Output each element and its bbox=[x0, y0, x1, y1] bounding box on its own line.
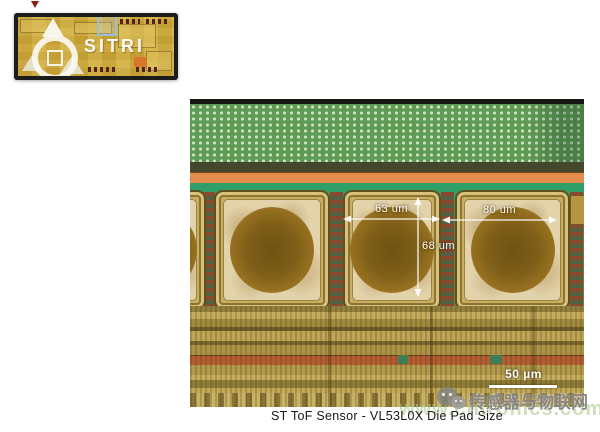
red-metal-trace bbox=[190, 355, 584, 366]
routing-stripe bbox=[190, 341, 584, 345]
pixel-array-region bbox=[190, 104, 584, 164]
dark-ring-strip bbox=[190, 162, 584, 172]
measurement-pitch-label: 80 um bbox=[442, 204, 557, 216]
zoom-region-highlight bbox=[97, 17, 117, 36]
pad-interior bbox=[190, 199, 197, 301]
watermark-site-name: 传感器与物联网 bbox=[469, 388, 588, 413]
pad-ball bbox=[471, 207, 555, 293]
microscope-photo: 63 um 80 um 68 um 50 µm bbox=[190, 99, 584, 407]
edge-gold-block bbox=[570, 195, 584, 225]
routing-column-break bbox=[430, 306, 433, 407]
bond-pad-partial bbox=[190, 190, 206, 310]
routing-stripe bbox=[190, 312, 584, 319]
measurement-pad-height-label: 68 um bbox=[422, 240, 472, 252]
routing-stripe bbox=[190, 331, 584, 341]
wechat-bubble-small bbox=[451, 396, 466, 409]
pad-interior bbox=[223, 199, 321, 301]
red-marker bbox=[31, 1, 39, 8]
bond-pad-strip bbox=[88, 67, 118, 72]
alignment-ring bbox=[32, 35, 78, 76]
routing-stripe bbox=[190, 327, 584, 331]
trace-green-via bbox=[490, 355, 502, 364]
routing-stripe bbox=[190, 345, 584, 355]
pad-channel bbox=[330, 192, 343, 306]
screenshot-root: SITRI bbox=[0, 0, 600, 432]
measurement-pad-width-label: 63 um bbox=[343, 203, 440, 215]
trace-green-via bbox=[398, 355, 408, 364]
bond-pad-1 bbox=[214, 190, 330, 310]
wechat-icon bbox=[437, 387, 469, 413]
bond-pad-strip bbox=[120, 19, 140, 24]
routing-stripe bbox=[190, 319, 584, 327]
pad-ball bbox=[230, 207, 314, 293]
routing-column-break bbox=[328, 306, 331, 407]
sitri-die-overview-photo: SITRI bbox=[14, 13, 178, 80]
die-watermark-text: SITRI bbox=[84, 36, 145, 57]
bond-pad-strip bbox=[136, 67, 160, 72]
routing-stripe bbox=[190, 306, 584, 312]
pad-ball bbox=[190, 207, 197, 293]
scale-bar-label: 50 µm bbox=[486, 367, 561, 381]
die-surface: SITRI bbox=[18, 17, 174, 76]
die-orange-block bbox=[134, 57, 147, 67]
bond-pad-strip bbox=[146, 19, 170, 24]
